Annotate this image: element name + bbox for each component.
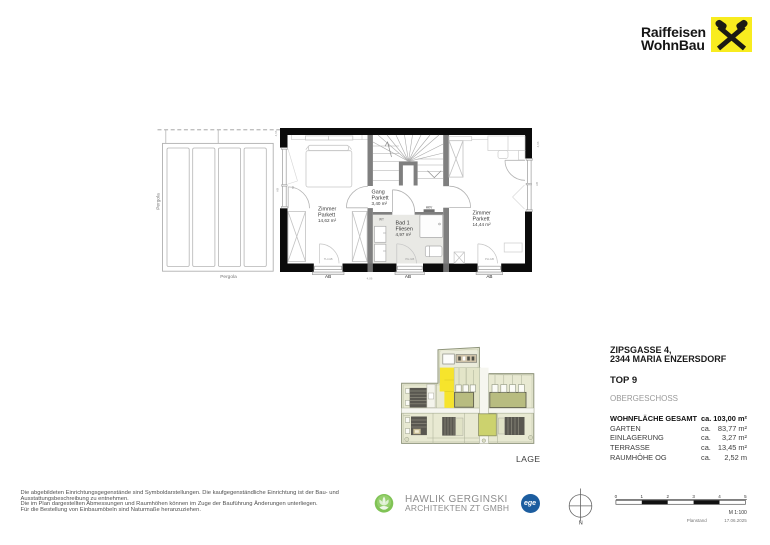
svg-text:Pergola: Pergola (220, 274, 237, 280)
svg-text:88: 88 (291, 186, 295, 190)
svg-text:4,66: 4,66 (274, 130, 278, 136)
svg-text:AB: AB (325, 274, 331, 279)
svg-text:14,62 m²: 14,62 m² (318, 218, 337, 223)
svg-text:AB: AB (275, 188, 279, 192)
svg-text:PH-GB: PH-GB (405, 257, 414, 261)
svg-text:3,40 m²: 3,40 m² (372, 201, 388, 206)
svg-text:Planstand: Planstand (687, 518, 708, 523)
svg-text:AB: AB (535, 182, 539, 186)
svg-text:4,66: 4,66 (536, 141, 540, 147)
svg-text:4,97 m²: 4,97 m² (396, 232, 412, 237)
svg-text:N: N (579, 521, 583, 527)
svg-text:14,44 m²: 14,44 m² (473, 222, 492, 227)
svg-text:5: 5 (744, 494, 747, 499)
svg-text:HKV: HKV (426, 206, 433, 210)
svg-text:3: 3 (692, 494, 695, 499)
svg-text:1: 1 (641, 494, 644, 499)
svg-text:M 1:100: M 1:100 (729, 510, 747, 516)
svg-text:Pergola: Pergola (155, 193, 161, 210)
svg-text:WT: WT (379, 217, 384, 221)
svg-text:LAGE: LAGE (516, 454, 540, 464)
svg-text:2: 2 (666, 494, 669, 499)
svg-text:AB: AB (405, 274, 411, 279)
svg-text:4,06: 4,06 (367, 277, 373, 281)
svg-text:4: 4 (718, 494, 721, 499)
svg-text:TH-GB: TH-GB (324, 257, 333, 261)
svg-text:17.06.2025: 17.06.2025 (724, 518, 747, 523)
svg-text:AB: AB (486, 274, 492, 279)
svg-text:0: 0 (615, 494, 618, 499)
svg-text:PH-GB: PH-GB (485, 257, 494, 261)
